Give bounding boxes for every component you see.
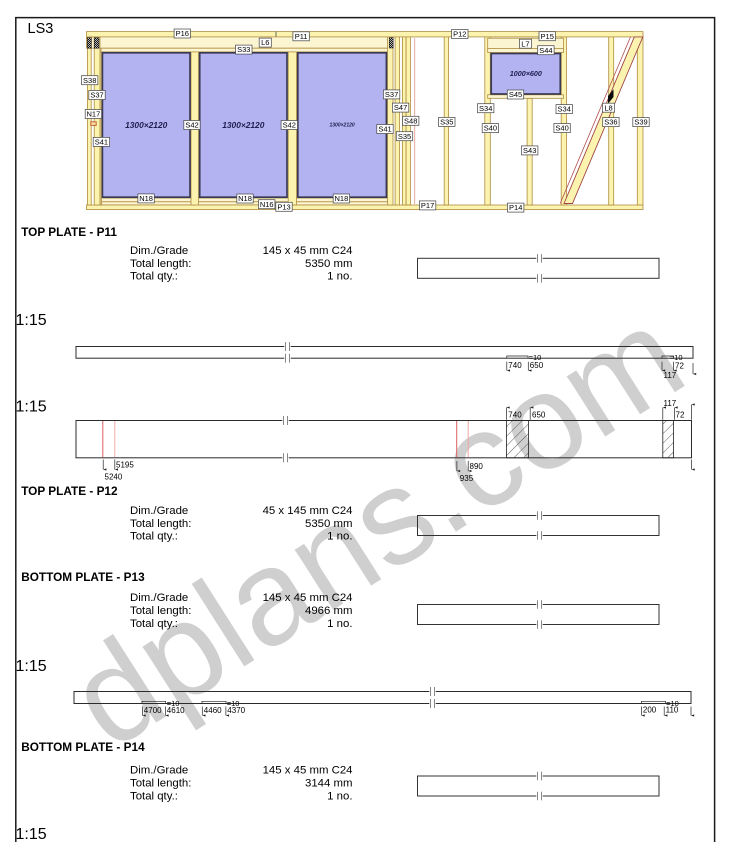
svg-text:1:15: 1:15	[16, 826, 47, 842]
svg-text:5350 mm: 5350 mm	[305, 258, 352, 270]
svg-text:Dim./Grade: Dim./Grade	[130, 765, 188, 777]
svg-text:N16: N16	[260, 200, 274, 209]
svg-text:S43: S43	[523, 146, 536, 155]
svg-text:Dim./Grade: Dim./Grade	[130, 592, 188, 604]
svg-text:5350 mm: 5350 mm	[305, 518, 352, 530]
svg-text:Dim./Grade: Dim./Grade	[130, 245, 188, 257]
svg-text:1300×2120: 1300×2120	[125, 120, 167, 130]
svg-text:TOP PLATE - P12: TOP PLATE - P12	[21, 484, 118, 498]
svg-text:Total qty.:: Total qty.:	[130, 531, 178, 543]
svg-text:650: 650	[532, 411, 546, 420]
svg-text:1 no.: 1 no.	[327, 271, 352, 283]
svg-text:45 x 145 mm C24: 45 x 145 mm C24	[263, 505, 353, 517]
svg-text:1:15: 1:15	[16, 399, 47, 416]
svg-text:4460: 4460	[204, 706, 222, 715]
svg-text:S33: S33	[237, 45, 250, 54]
svg-text:S47: S47	[394, 103, 407, 112]
svg-text:Total length:: Total length:	[130, 518, 191, 530]
svg-text:740: 740	[508, 411, 522, 420]
svg-text:117: 117	[664, 371, 677, 380]
svg-text:S37: S37	[385, 90, 398, 99]
svg-text:110: 110	[666, 706, 679, 715]
svg-text:S40: S40	[555, 124, 568, 133]
svg-text:P14: P14	[509, 203, 522, 212]
svg-text:1 no.: 1 no.	[327, 790, 352, 802]
svg-text:1300×2120: 1300×2120	[330, 123, 355, 129]
svg-text:72: 72	[676, 411, 685, 420]
svg-text:S41: S41	[378, 125, 391, 134]
svg-text:N18: N18	[139, 194, 153, 203]
svg-text:P16: P16	[176, 29, 189, 38]
svg-text:Total length:: Total length:	[130, 258, 191, 270]
svg-text:LS3: LS3	[28, 21, 54, 37]
svg-text:BOTTOM PLATE - P13: BOTTOM PLATE - P13	[21, 570, 145, 584]
svg-text:1 no.: 1 no.	[327, 531, 352, 543]
svg-text:1000×600: 1000×600	[510, 69, 542, 78]
svg-text:P17: P17	[421, 201, 434, 210]
svg-text:P15: P15	[541, 32, 554, 41]
svg-text:890: 890	[470, 462, 484, 471]
svg-text:S41: S41	[95, 138, 108, 147]
svg-text:1:15: 1:15	[16, 312, 47, 329]
svg-text:Total qty.:: Total qty.:	[130, 618, 178, 630]
svg-text:S35: S35	[398, 132, 411, 141]
svg-text:145 x 45 mm C24: 145 x 45 mm C24	[263, 245, 353, 257]
svg-text:N18: N18	[335, 194, 349, 203]
svg-text:S35: S35	[440, 118, 453, 127]
svg-text:S34: S34	[558, 105, 571, 114]
svg-text:P11: P11	[295, 32, 308, 41]
svg-text:S48: S48	[404, 116, 417, 125]
svg-text:S37: S37	[90, 91, 103, 100]
svg-text:4966 mm: 4966 mm	[305, 605, 352, 617]
svg-text:Total qty.:: Total qty.:	[130, 790, 178, 802]
svg-text:935: 935	[460, 474, 474, 483]
svg-text:S39: S39	[634, 118, 647, 127]
svg-text:4370: 4370	[227, 706, 245, 715]
svg-text:72: 72	[675, 362, 684, 371]
svg-text:650: 650	[530, 361, 544, 370]
svg-text:N18: N18	[238, 194, 252, 203]
svg-text:BOTTOM PLATE - P14: BOTTOM PLATE - P14	[21, 740, 145, 754]
svg-text:Dim./Grade: Dim./Grade	[130, 505, 188, 517]
svg-text:200: 200	[643, 706, 657, 715]
svg-text:TOP PLATE - P11: TOP PLATE - P11	[21, 225, 117, 239]
svg-text:740: 740	[508, 361, 522, 370]
svg-text:S36: S36	[604, 118, 617, 127]
svg-text:S42: S42	[283, 121, 296, 130]
svg-text:5240: 5240	[105, 472, 123, 481]
svg-text:145 x 45 mm C24: 145 x 45 mm C24	[263, 765, 353, 777]
svg-text:Total qty.:: Total qty.:	[130, 271, 178, 283]
svg-text:1 no.: 1 no.	[327, 618, 352, 630]
svg-text:Total length:: Total length:	[130, 777, 191, 789]
svg-text:S45: S45	[509, 90, 522, 99]
svg-text:3144 mm: 3144 mm	[305, 777, 352, 789]
svg-text:N17: N17	[87, 110, 101, 119]
svg-text:5195: 5195	[116, 460, 134, 469]
svg-text:S44: S44	[539, 46, 552, 55]
svg-text:145 x 45 mm C24: 145 x 45 mm C24	[263, 592, 353, 604]
svg-text:P13: P13	[277, 202, 290, 211]
svg-text:P12: P12	[453, 30, 466, 39]
svg-text:4700: 4700	[144, 706, 162, 715]
svg-text:L8: L8	[604, 103, 612, 112]
svg-text:S34: S34	[479, 104, 492, 113]
svg-text:S38: S38	[83, 76, 96, 85]
svg-text:S40: S40	[484, 124, 497, 133]
svg-text:L7: L7	[521, 39, 529, 48]
svg-text:1:15: 1:15	[16, 658, 47, 675]
svg-text:1300×2120: 1300×2120	[222, 120, 264, 130]
svg-text:L6: L6	[261, 38, 269, 47]
svg-text:4610: 4610	[167, 706, 185, 715]
svg-text:Total length:: Total length:	[130, 605, 191, 617]
svg-text:S42: S42	[185, 121, 198, 130]
